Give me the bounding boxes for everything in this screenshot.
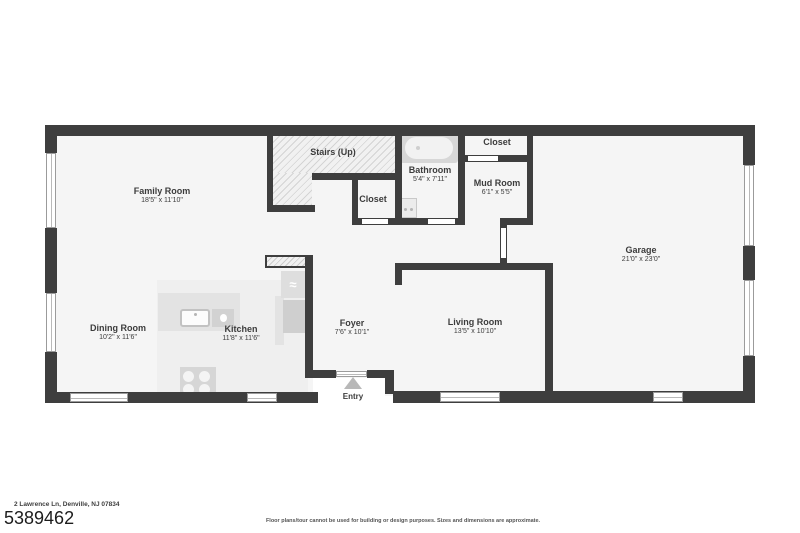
kitchen-sink [180, 309, 210, 327]
room-name: Foyer [335, 318, 370, 328]
bathtub-basin [405, 137, 453, 159]
room-label-living-room: Living Room 13'5" x 10'10" [448, 317, 503, 336]
tall-appliance [283, 300, 305, 333]
room-label-dining-room: Dining Room 10'2" x 11'6" [90, 323, 146, 342]
room-name: Family Room [134, 186, 191, 196]
wall [395, 263, 553, 270]
room-dims: 10'2" x 11'6" [90, 333, 146, 342]
wall [352, 180, 358, 220]
room-name: Bathroom [409, 165, 452, 175]
door-opening [468, 156, 498, 161]
wall [45, 228, 57, 293]
room-name: Stairs (Up) [310, 147, 356, 157]
room-dims: 11'8" x 11'6" [222, 334, 259, 343]
room-dims: 5'4" x 7'11" [409, 175, 452, 184]
window [247, 393, 277, 402]
room-name: Kitchen [222, 324, 259, 334]
room-label-mud-room: Mud Room 6'1" x 5'5" [474, 178, 521, 197]
window [744, 165, 754, 246]
wall [312, 173, 397, 180]
room-dims: 7'6" x 10'1" [335, 328, 370, 337]
address-text: 2 Lawrence Ln, Denville, NJ 07834 [14, 501, 120, 508]
room-name: Garage [622, 245, 660, 255]
wall [385, 370, 394, 394]
burner-icon [183, 371, 194, 382]
drain-dot [416, 146, 420, 150]
room-label-garage: Garage 21'0" x 23'0" [622, 245, 660, 264]
floor-plan-page: ≈ Family Room 18'5" x 11'10" Stairs (Up)… [0, 0, 800, 533]
wall [267, 205, 315, 212]
sink-dot [410, 208, 413, 211]
stairs-hatch [273, 173, 312, 205]
wall [743, 356, 755, 403]
room-dims: 6'1" x 5'5" [474, 188, 521, 197]
room-label-closet-top: Closet [483, 137, 511, 147]
wall [267, 136, 273, 212]
wall [395, 130, 402, 225]
burner-icon [199, 371, 210, 382]
sink-dot [404, 208, 407, 211]
entry-arrow-icon [344, 377, 362, 389]
room-label-closet-stairs: Closet [359, 194, 387, 204]
wall [327, 370, 336, 378]
door-opening [362, 219, 388, 224]
door-opening [428, 219, 455, 224]
window [46, 153, 56, 228]
door-opening [501, 228, 506, 258]
wall [458, 130, 465, 225]
wall [743, 125, 755, 165]
room-name: Closet [483, 137, 511, 147]
room-label-bathroom: Bathroom 5'4" x 7'11" [409, 165, 452, 184]
room-dims: 21'0" x 23'0" [622, 255, 660, 264]
refrigerator-icon: ≈ [289, 278, 296, 291]
wall [45, 125, 57, 153]
water-drop-icon [220, 314, 227, 322]
room-name: Dining Room [90, 323, 146, 333]
refrigerator: ≈ [281, 271, 305, 298]
wall [305, 255, 313, 372]
wall [545, 263, 553, 402]
window [70, 393, 128, 402]
room-label-stairs: Stairs (Up) [310, 147, 356, 157]
room-label-family-room: Family Room 18'5" x 11'10" [134, 186, 191, 205]
room-name: Living Room [448, 317, 503, 327]
room-dims: 18'5" x 11'10" [134, 196, 191, 205]
window [744, 280, 754, 356]
wall [367, 370, 376, 378]
mls-number: 5389462 [4, 508, 74, 529]
room-label-foyer: Foyer 7'6" x 10'1" [335, 318, 370, 337]
window [440, 392, 500, 402]
bathtub [400, 133, 458, 163]
window [46, 293, 56, 352]
sink-faucet-dot [194, 313, 197, 316]
wall [527, 125, 533, 225]
window [653, 392, 683, 402]
room-dims: 13'5" x 10'10" [448, 327, 503, 336]
room-name: Closet [359, 194, 387, 204]
wall [395, 263, 402, 285]
wall [743, 246, 755, 280]
room-label-kitchen: Kitchen 11'8" x 11'6" [222, 324, 259, 343]
disclaimer-text: Floor plans/tour cannot be used for buil… [266, 518, 540, 524]
entry-label: Entry [343, 392, 363, 401]
room-name: Mud Room [474, 178, 521, 188]
